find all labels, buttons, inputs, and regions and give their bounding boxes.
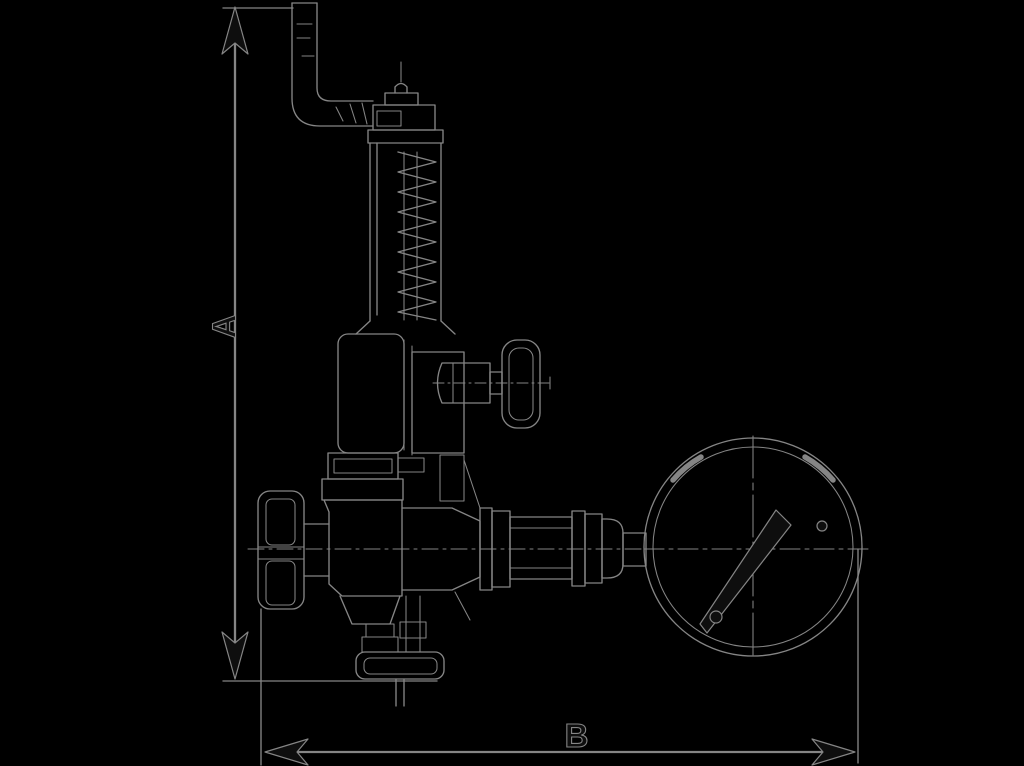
housing-top-flange [368,130,443,143]
screw-dome [395,84,407,94]
pressure-gauge [644,436,869,660]
flange-stem [396,679,404,706]
union-nut-outer [328,453,398,479]
drain-fitting [400,622,426,638]
bonnet [338,334,464,455]
bonnet-body [338,334,404,453]
test-knob-assembly [433,340,553,428]
gauge-screw-left [710,611,722,623]
body-left-block [324,500,402,596]
flange-outer [356,652,444,679]
drain-strip [406,596,420,652]
outlet-neck-1 [366,624,394,637]
housing-flare [356,321,455,334]
handwheel-stem [304,524,329,576]
outlet-neck-2 [362,637,398,652]
outlet-flange [340,592,470,706]
body-top-band [322,479,403,500]
union-nut-right [398,458,424,472]
dimension-a-label: A [206,314,243,339]
gooseneck-outer-wall [292,3,373,126]
housing-left-wall [370,143,377,321]
adjusting-screw-cap [368,62,443,143]
handwheel-rim [258,491,304,609]
technical-drawing-canvas: A B [0,0,1024,766]
bonnet-inner-lines [404,340,412,455]
handwheel [258,491,329,609]
handwheel-spoke-bottom [266,561,295,605]
flange-inner [364,658,437,674]
pipe-section [510,517,572,579]
jam-nut [385,93,418,105]
gooseneck-pipe [292,3,373,126]
outlet-upper-block [440,455,464,501]
dimension-b-label: B [565,717,590,754]
union-nut-inner [334,459,392,473]
spring-housing [356,143,455,334]
gooseneck-inner-wall [317,3,373,101]
knob-outer [502,340,540,428]
valve-technical-drawing: A B [0,0,1024,766]
dimension-b: B [261,549,858,765]
outlet-taper [340,596,400,624]
pipe-section-walls [510,528,572,568]
body-bottom-right-slant [455,592,470,620]
cap-plate-inset [377,111,401,126]
gauge-screw-right [817,521,827,531]
outlet-slant [464,460,480,508]
knob-inner [509,348,533,420]
pipe-texture-marks [297,24,367,124]
gauge-pipe-run [480,508,646,590]
handwheel-spoke-top [266,499,295,545]
